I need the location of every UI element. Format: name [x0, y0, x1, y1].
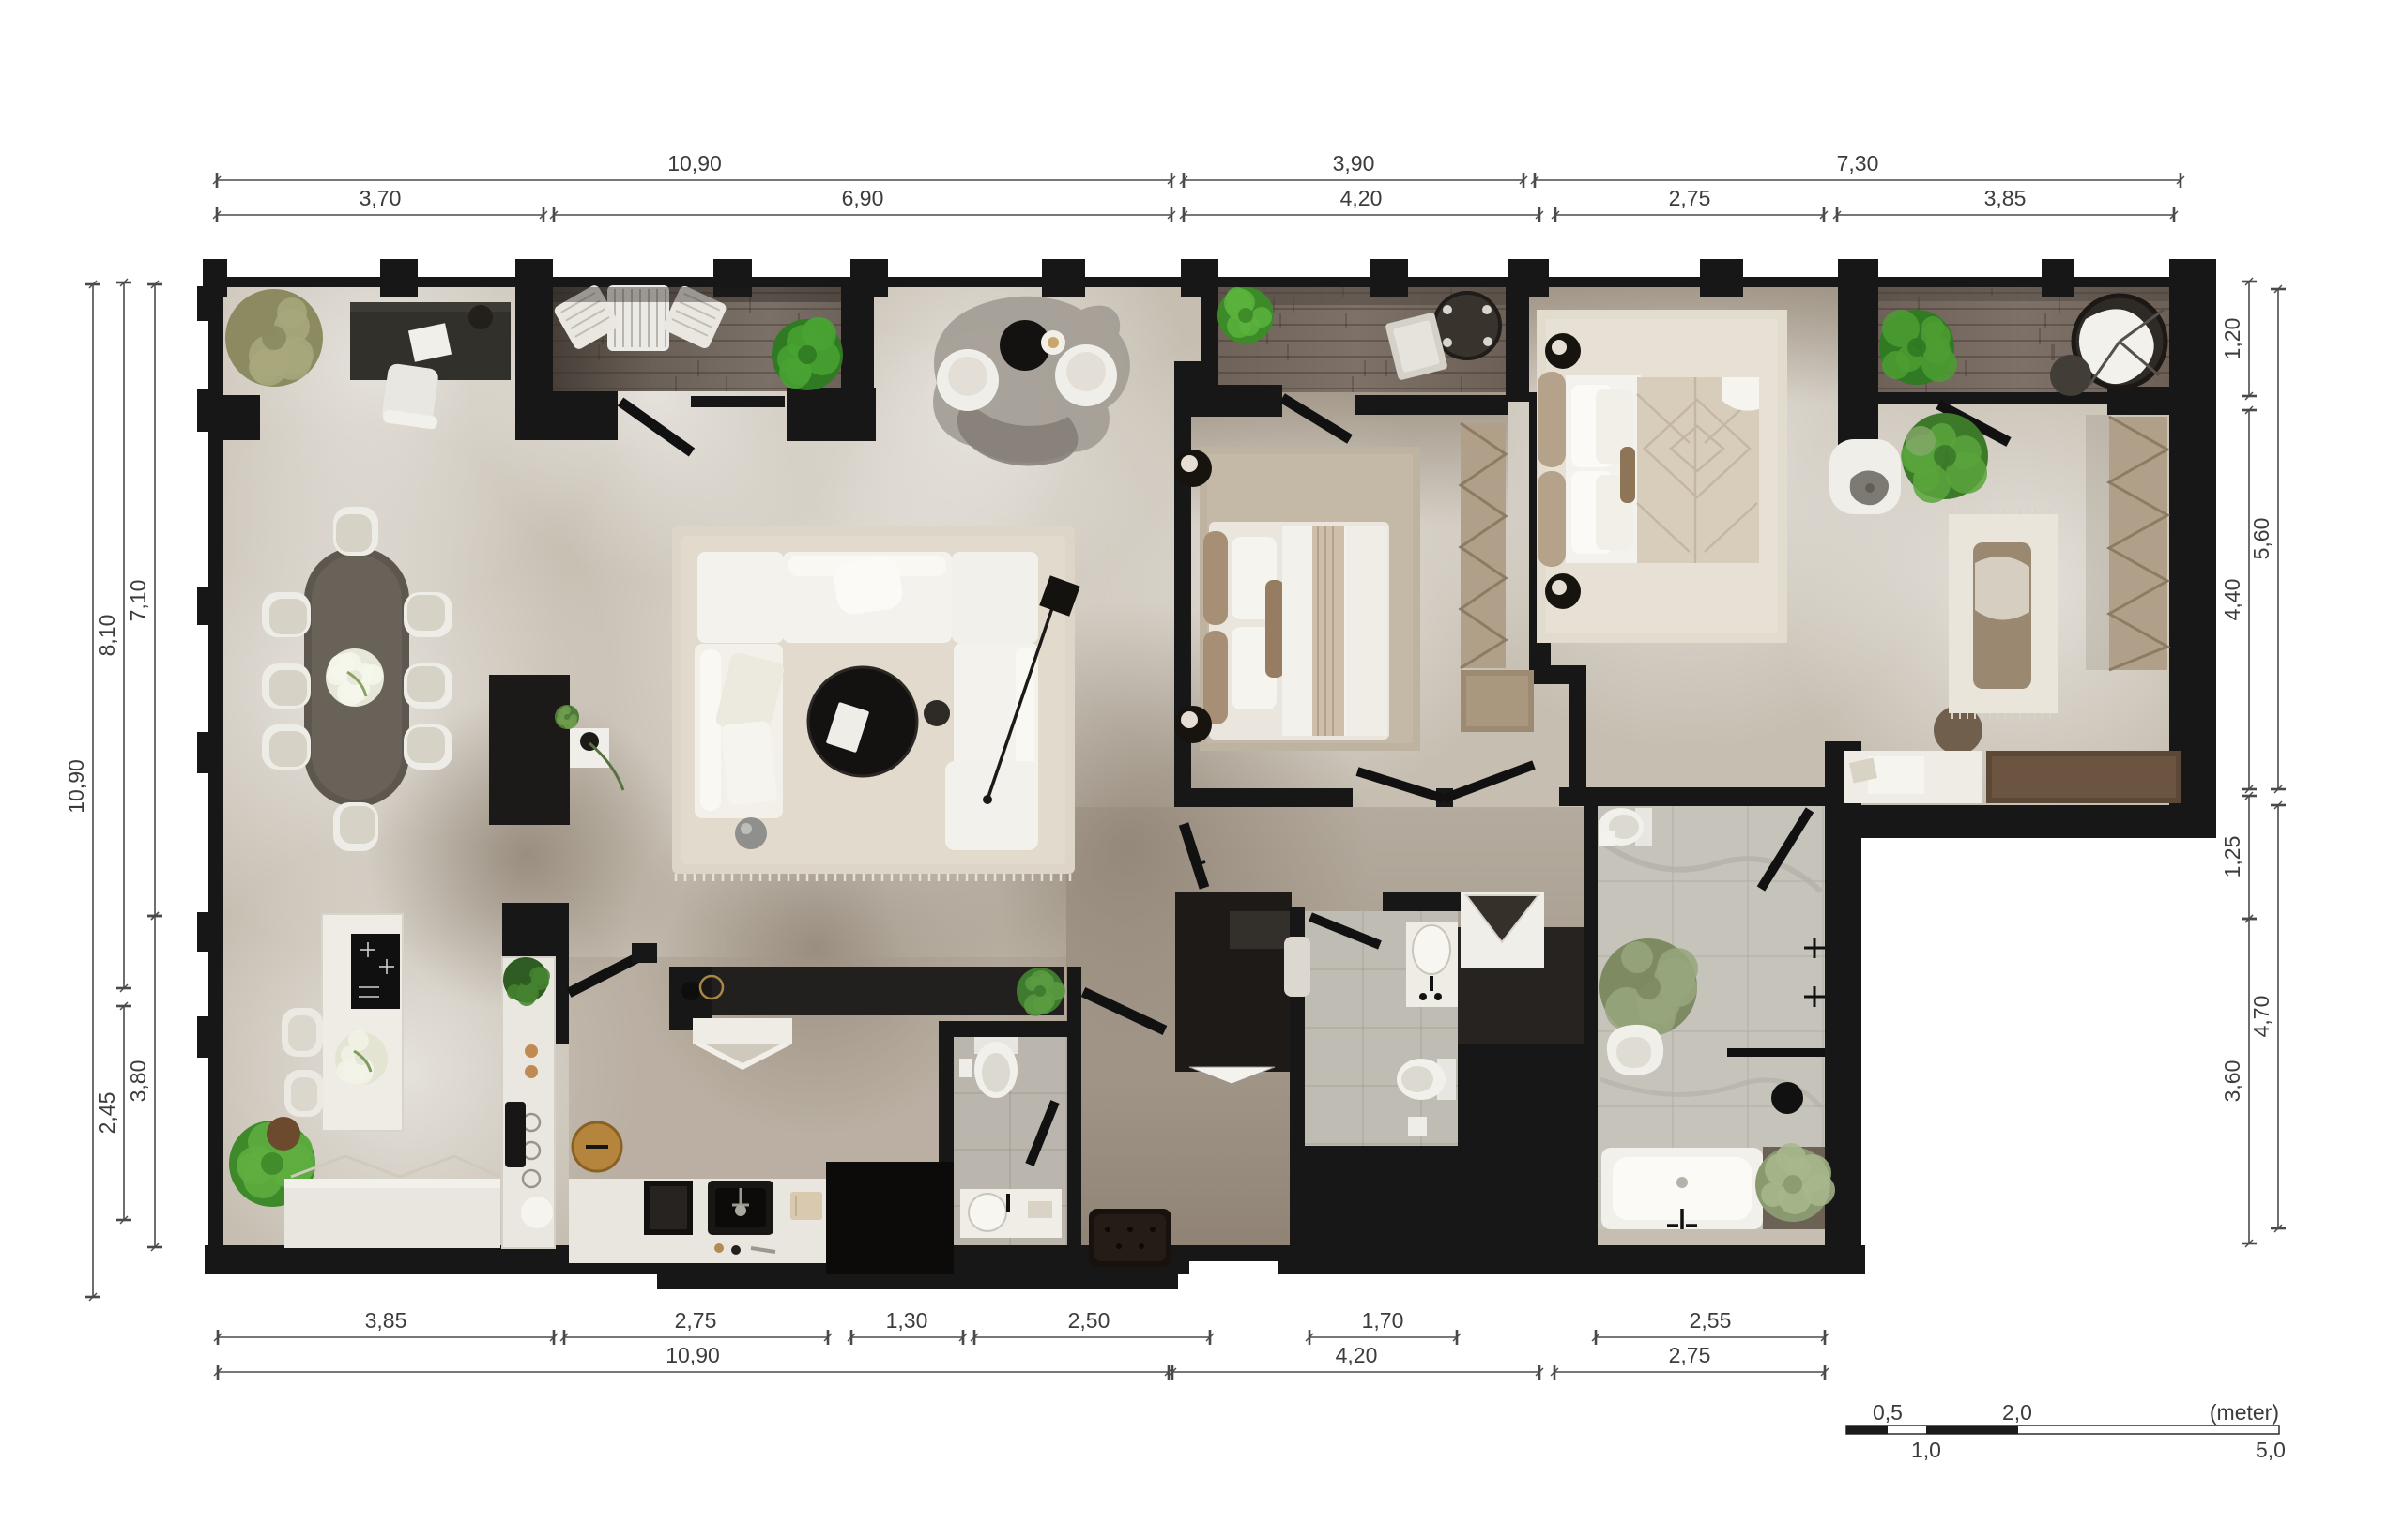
svg-text:2,45: 2,45	[95, 1092, 119, 1135]
svg-text:1,25: 1,25	[2220, 836, 2244, 878]
svg-text:10,90: 10,90	[64, 759, 88, 814]
svg-text:8,10: 8,10	[95, 615, 119, 657]
svg-text:10,90: 10,90	[667, 151, 722, 175]
svg-text:5,0: 5,0	[2256, 1438, 2286, 1462]
svg-text:3,60: 3,60	[2220, 1060, 2244, 1103]
svg-text:7,10: 7,10	[126, 580, 150, 622]
svg-text:10,90: 10,90	[666, 1343, 720, 1367]
svg-text:2,75: 2,75	[1669, 1343, 1711, 1367]
svg-text:1,0: 1,0	[1911, 1438, 1941, 1462]
svg-text:4,20: 4,20	[1340, 186, 1383, 210]
svg-text:(meter): (meter)	[2210, 1400, 2279, 1425]
svg-text:1,30: 1,30	[886, 1308, 928, 1333]
svg-text:1,20: 1,20	[2220, 318, 2244, 360]
svg-text:7,30: 7,30	[1837, 151, 1879, 175]
svg-text:0,5: 0,5	[1873, 1400, 1903, 1425]
svg-text:4,40: 4,40	[2220, 579, 2244, 621]
svg-text:3,70: 3,70	[360, 186, 402, 210]
svg-text:3,85: 3,85	[1984, 186, 2027, 210]
svg-text:3,90: 3,90	[1333, 151, 1375, 175]
svg-text:2,75: 2,75	[1669, 186, 1711, 210]
svg-text:2,55: 2,55	[1690, 1308, 1732, 1333]
svg-text:5,60: 5,60	[2249, 518, 2273, 560]
svg-text:4,20: 4,20	[1336, 1343, 1378, 1367]
svg-text:6,90: 6,90	[842, 186, 884, 210]
svg-text:4,70: 4,70	[2249, 996, 2273, 1038]
svg-text:3,85: 3,85	[365, 1308, 407, 1333]
svg-text:1,70: 1,70	[1362, 1308, 1404, 1333]
svg-text:3,80: 3,80	[126, 1060, 150, 1103]
svg-text:2,0: 2,0	[2002, 1400, 2032, 1425]
svg-text:2,75: 2,75	[675, 1308, 717, 1333]
svg-text:2,50: 2,50	[1068, 1308, 1110, 1333]
